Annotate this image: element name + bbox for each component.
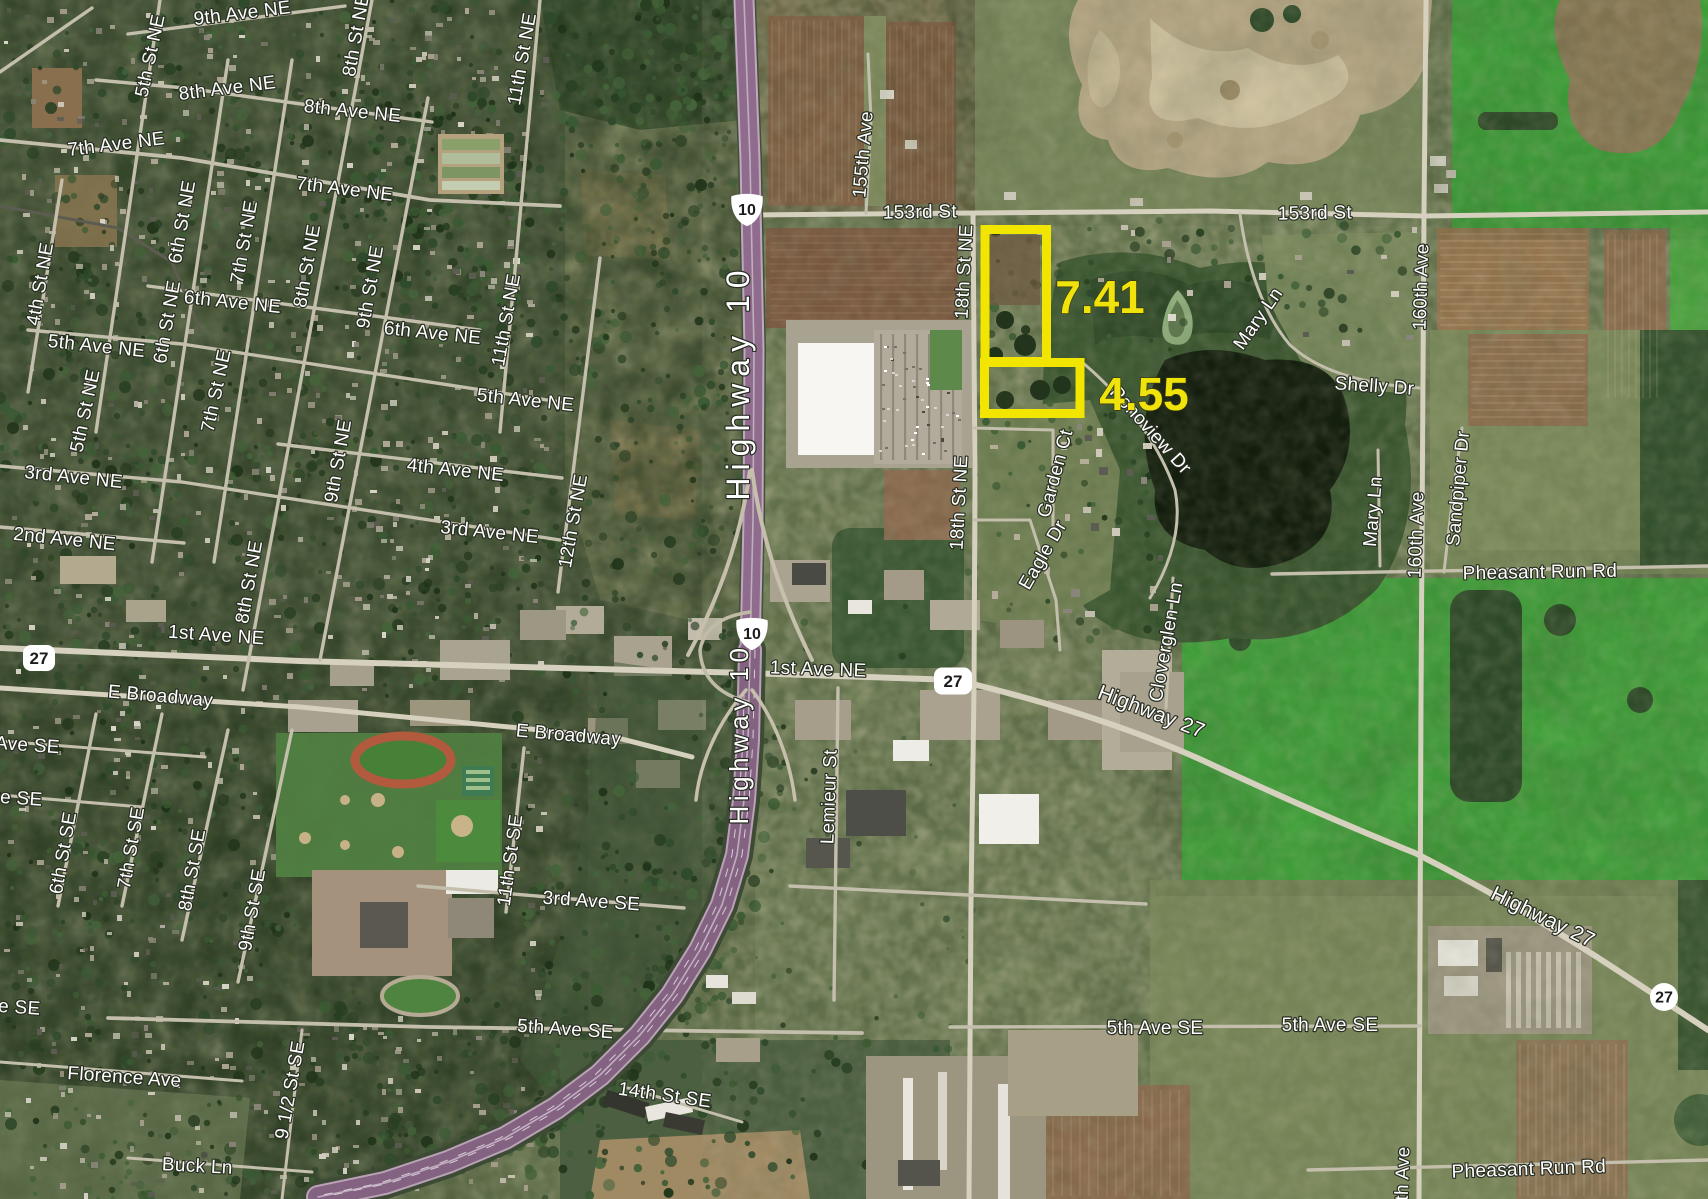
svg-text:Pheasant Run Rd: Pheasant Run Rd bbox=[1462, 561, 1617, 585]
svg-text:160th Ave: 160th Ave bbox=[1409, 243, 1433, 331]
svg-text:153rd St: 153rd St bbox=[1278, 202, 1353, 224]
svg-text:153rd St: 153rd St bbox=[883, 201, 958, 223]
svg-text:160th Ave: 160th Ave bbox=[1390, 1146, 1414, 1199]
svg-text:27: 27 bbox=[30, 649, 49, 668]
svg-text:1st Ave NE: 1st Ave NE bbox=[770, 657, 867, 681]
svg-text:5th Ave SE: 5th Ave SE bbox=[1282, 1015, 1379, 1036]
svg-text:27: 27 bbox=[1655, 990, 1673, 1007]
svg-text:7.41: 7.41 bbox=[1055, 271, 1145, 323]
svg-text:4.55: 4.55 bbox=[1099, 368, 1189, 420]
svg-text:Highway 10: Highway 10 bbox=[724, 644, 754, 825]
svg-text:27: 27 bbox=[944, 672, 963, 691]
svg-text:Highway 10: Highway 10 bbox=[720, 263, 756, 500]
svg-text:10: 10 bbox=[743, 626, 761, 643]
svg-text:Ave SE: Ave SE bbox=[0, 733, 60, 758]
svg-text:ve SE: ve SE bbox=[0, 786, 43, 811]
svg-text:Buck Ln: Buck Ln bbox=[161, 1154, 233, 1179]
svg-text:10: 10 bbox=[738, 202, 756, 219]
svg-text:ve SE: ve SE bbox=[0, 995, 41, 1020]
svg-text:160th Ave: 160th Ave bbox=[1404, 491, 1428, 579]
svg-text:Lemieur St: Lemieur St bbox=[817, 749, 841, 845]
svg-text:5th Ave SE: 5th Ave SE bbox=[1107, 1018, 1204, 1039]
